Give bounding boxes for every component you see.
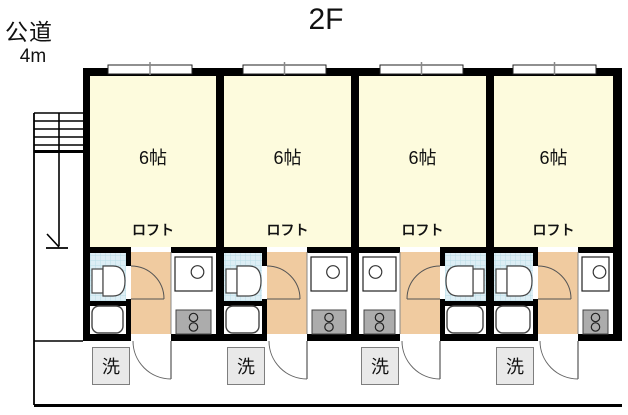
unit-3-washer-box: 洗 <box>361 347 399 385</box>
unit-2-loft-label: ロフト <box>224 223 351 237</box>
road-width-label: 4m <box>5 47 61 66</box>
floorplan-page: 2F 公道 4m 6帖 6帖 6帖 6帖 ロフト ロフト ロフト ロフト 洗 洗… <box>0 0 628 415</box>
unit-1-size-label: 6帖 <box>90 149 216 167</box>
road-label: 公道 <box>5 21 53 44</box>
unit-4-size-label: 6帖 <box>494 149 613 167</box>
unit-2-size-label: 6帖 <box>224 149 351 167</box>
unit-3-size-label: 6帖 <box>359 149 486 167</box>
unit-2-washer-box: 洗 <box>227 347 265 385</box>
unit-1-washer-box: 洗 <box>92 347 130 385</box>
unit-4-loft-label: ロフト <box>494 223 613 237</box>
unit-1-loft-label: ロフト <box>90 223 216 237</box>
unit-4-washer-box: 洗 <box>496 347 534 385</box>
unit-3-loft-label: ロフト <box>359 223 486 237</box>
floor-title: 2F <box>290 5 362 35</box>
